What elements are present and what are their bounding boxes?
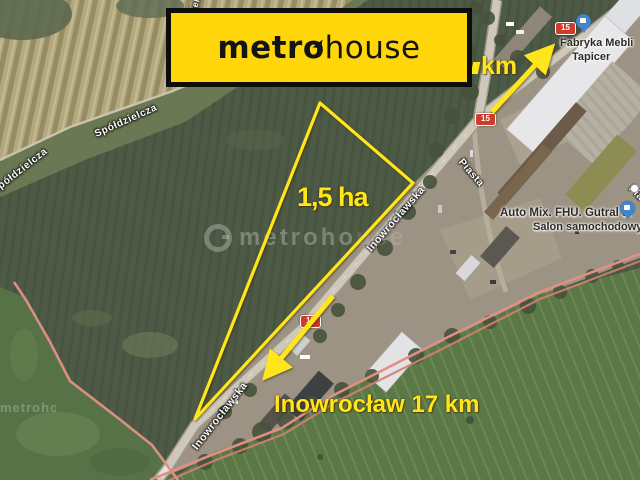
metrohouse-logo-banner: metrohouse (166, 8, 472, 87)
plot-boundary-triangle (195, 103, 413, 419)
logo-text-house: house (325, 30, 421, 66)
distance-label-inowroclaw: Inowrocław 17 km (274, 391, 479, 419)
listing-map-image[interactable]: metrohouse metroho Spółdzielcza Spółdzie… (0, 0, 640, 480)
distance-label-top: km (481, 52, 517, 81)
logo-text-metro: metr (217, 30, 302, 66)
plot-pointer-arrow (268, 296, 333, 374)
plot-area-label: 1,5 ha (297, 182, 368, 213)
logo-o-arrow-icon: o (303, 30, 325, 66)
metrohouse-logo: metrohouse (171, 13, 467, 82)
